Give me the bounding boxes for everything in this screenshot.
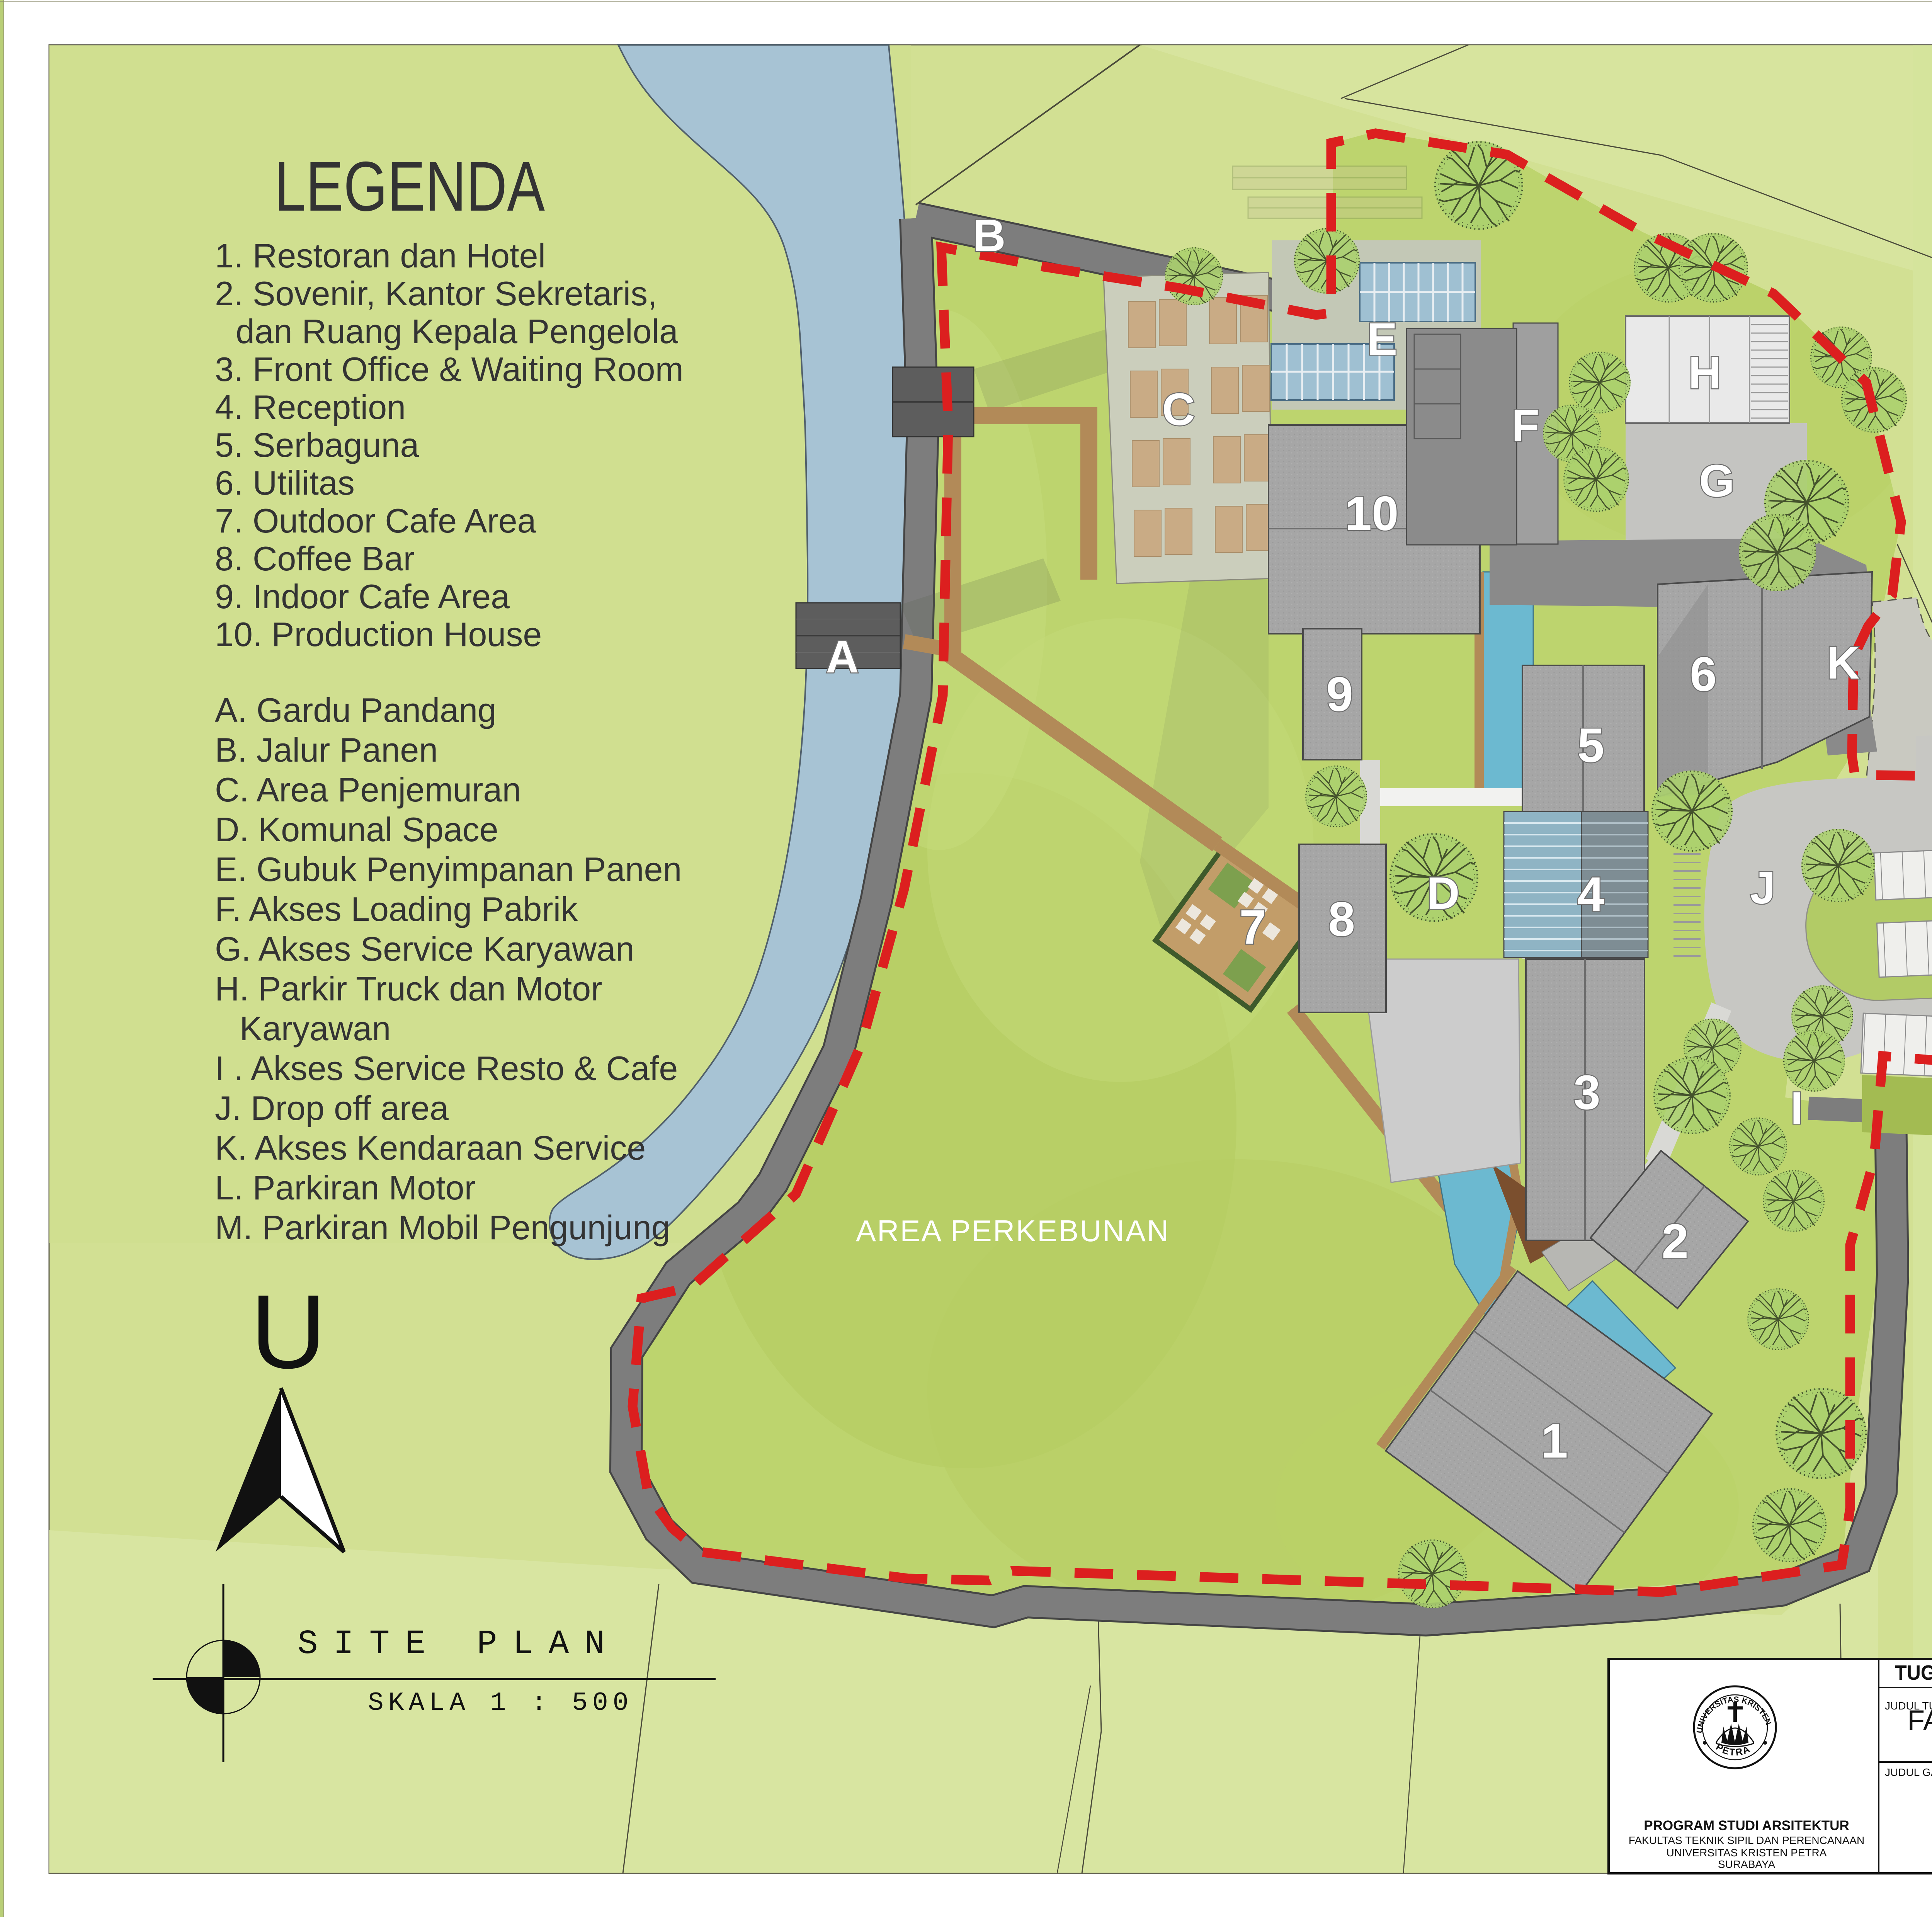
svg-text:5. Serbaguna: 5. Serbaguna [215,426,419,464]
svg-text:FAKULTAS TEKNIK SIPIL DAN PERE: FAKULTAS TEKNIK SIPIL DAN PERENCANAAN [1629,1834,1864,1846]
svg-text:A. Gardu Pandang: A. Gardu Pandang [215,691,497,729]
svg-text:F. Akses Loading Pabrik: F. Akses Loading Pabrik [215,890,578,928]
svg-text:6. Utilitas: 6. Utilitas [215,464,355,502]
svg-text:U: U [250,1273,326,1390]
svg-text:E: E [1367,314,1398,365]
svg-text:J. Drop off area: J. Drop off area [215,1089,449,1127]
svg-text:D. Komunal Space: D. Komunal Space [215,810,498,849]
svg-text:H. Parkir Truck dan Motor: H. Parkir Truck dan Motor [215,970,602,1008]
svg-text:SURABAYA: SURABAYA [1718,1858,1776,1870]
svg-text:2: 2 [1662,1214,1689,1268]
svg-text:G. Akses Service Karyawan: G. Akses Service Karyawan [215,930,634,968]
svg-text:C. Area Penjemuran: C. Area Penjemuran [215,771,521,809]
svg-text:2. Sovenir, Kantor Sekretaris,: 2. Sovenir, Kantor Sekretaris, [215,274,657,313]
svg-text:LEGENDA: LEGENDA [274,147,545,226]
svg-text:7. Outdoor Cafe Area: 7. Outdoor Cafe Area [215,502,536,540]
svg-text:10. Production House: 10. Production House [215,615,542,653]
svg-text:TUGAS AKHIR - SEMESTER GENAP 2: TUGAS AKHIR - SEMESTER GENAP 2021/2022 [1895,1661,1932,1684]
svg-text:3: 3 [1573,1066,1600,1119]
svg-text:F: F [1512,400,1539,451]
svg-text:L. Parkiran Motor: L. Parkiran Motor [215,1169,476,1207]
svg-text:H: H [1688,347,1721,398]
svg-text:JUDUL GAMBAR: JUDUL GAMBAR [1885,1766,1932,1778]
svg-text:J: J [1750,862,1776,913]
svg-text:D: D [1427,868,1459,919]
svg-text:C: C [1162,384,1195,435]
svg-text:M. Parkiran Mobil Pengunjung: M. Parkiran Mobil Pengunjung [215,1208,670,1247]
svg-text:5: 5 [1577,719,1604,772]
svg-text:4. Reception: 4. Reception [215,388,406,426]
svg-text:PROGRAM STUDI ARSITEKTUR: PROGRAM STUDI ARSITEKTUR [1644,1818,1849,1833]
svg-text:I . Akses Service Resto & Cafe: I . Akses Service Resto & Cafe [215,1049,678,1087]
svg-text:1: 1 [1541,1414,1568,1468]
svg-text:8. Coffee Bar: 8. Coffee Bar [215,539,415,578]
svg-text:B: B [973,210,1005,261]
svg-text:E. Gubuk Penyimpanan Panen: E. Gubuk Penyimpanan Panen [215,850,682,888]
svg-text:9: 9 [1326,668,1353,721]
svg-text:K: K [1827,638,1859,689]
svg-text:K. Akses Kendaraan Service: K. Akses Kendaraan Service [215,1129,646,1167]
svg-text:9. Indoor Cafe Area: 9. Indoor Cafe Area [215,577,510,616]
svg-text:10: 10 [1345,487,1398,541]
svg-text:dan Ruang Kepala Pengelola: dan Ruang Kepala Pengelola [236,312,678,350]
svg-text:AREA PERKEBUNAN: AREA PERKEBUNAN [856,1214,1170,1248]
svg-text:1. Restoran dan Hotel: 1. Restoran dan Hotel [215,236,546,275]
svg-text:6: 6 [1690,648,1717,701]
svg-text:UNIVERSITAS KRISTEN PETRA: UNIVERSITAS KRISTEN PETRA [1667,1847,1827,1859]
svg-text:A: A [826,631,859,682]
svg-text:Karyawan: Karyawan [240,1009,391,1048]
svg-text:B. Jalur Panen: B. Jalur Panen [215,731,438,769]
svg-text:8: 8 [1328,893,1355,946]
svg-text:SITE PLAN: SITE PLAN [298,1625,620,1664]
svg-text:FASILITAS EDUKASI TANAMAN: FASILITAS EDUKASI TANAMAN [1908,1705,1932,1736]
svg-text:4: 4 [1577,867,1604,921]
svg-text:SKALA 1 : 500: SKALA 1 : 500 [368,1688,633,1718]
svg-text:7: 7 [1239,900,1266,954]
svg-text:G: G [1699,456,1735,507]
svg-text:3. Front Office & Waiting Room: 3. Front Office & Waiting Room [215,350,684,388]
svg-text:I: I [1791,1083,1803,1134]
